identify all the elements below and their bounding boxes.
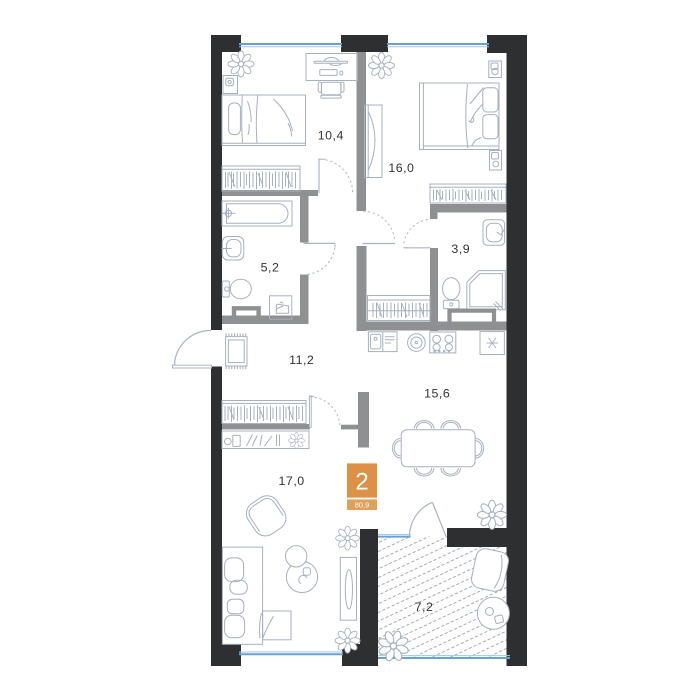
svg-text:80,9: 80,9 — [355, 501, 370, 510]
svg-text:15,6: 15,6 — [424, 387, 450, 401]
svg-text:7,2: 7,2 — [415, 600, 434, 614]
svg-text:11,2: 11,2 — [289, 353, 314, 367]
svg-text:5,2: 5,2 — [261, 261, 280, 275]
svg-text:17,0: 17,0 — [279, 474, 305, 488]
svg-text:16,0: 16,0 — [388, 161, 414, 175]
svg-text:3,9: 3,9 — [451, 242, 470, 256]
svg-text:10,4: 10,4 — [318, 129, 344, 143]
svg-text:2: 2 — [355, 468, 368, 495]
